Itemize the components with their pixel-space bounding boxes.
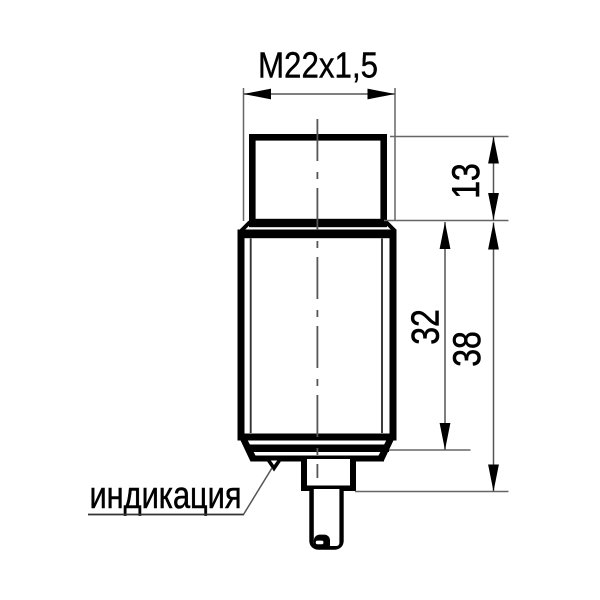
svg-text:индикация: индикация <box>89 475 241 517</box>
svg-text:32: 32 <box>403 309 447 345</box>
svg-text:13: 13 <box>444 163 488 199</box>
svg-text:38: 38 <box>445 331 489 367</box>
svg-text:M22x1,5: M22x1,5 <box>258 45 378 86</box>
